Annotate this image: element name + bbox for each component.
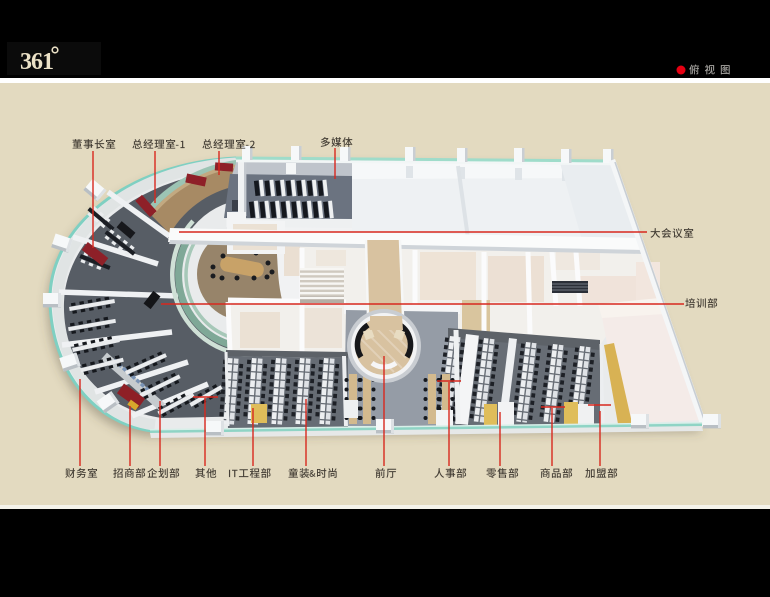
svg-text:361: 361 [20,49,53,75]
